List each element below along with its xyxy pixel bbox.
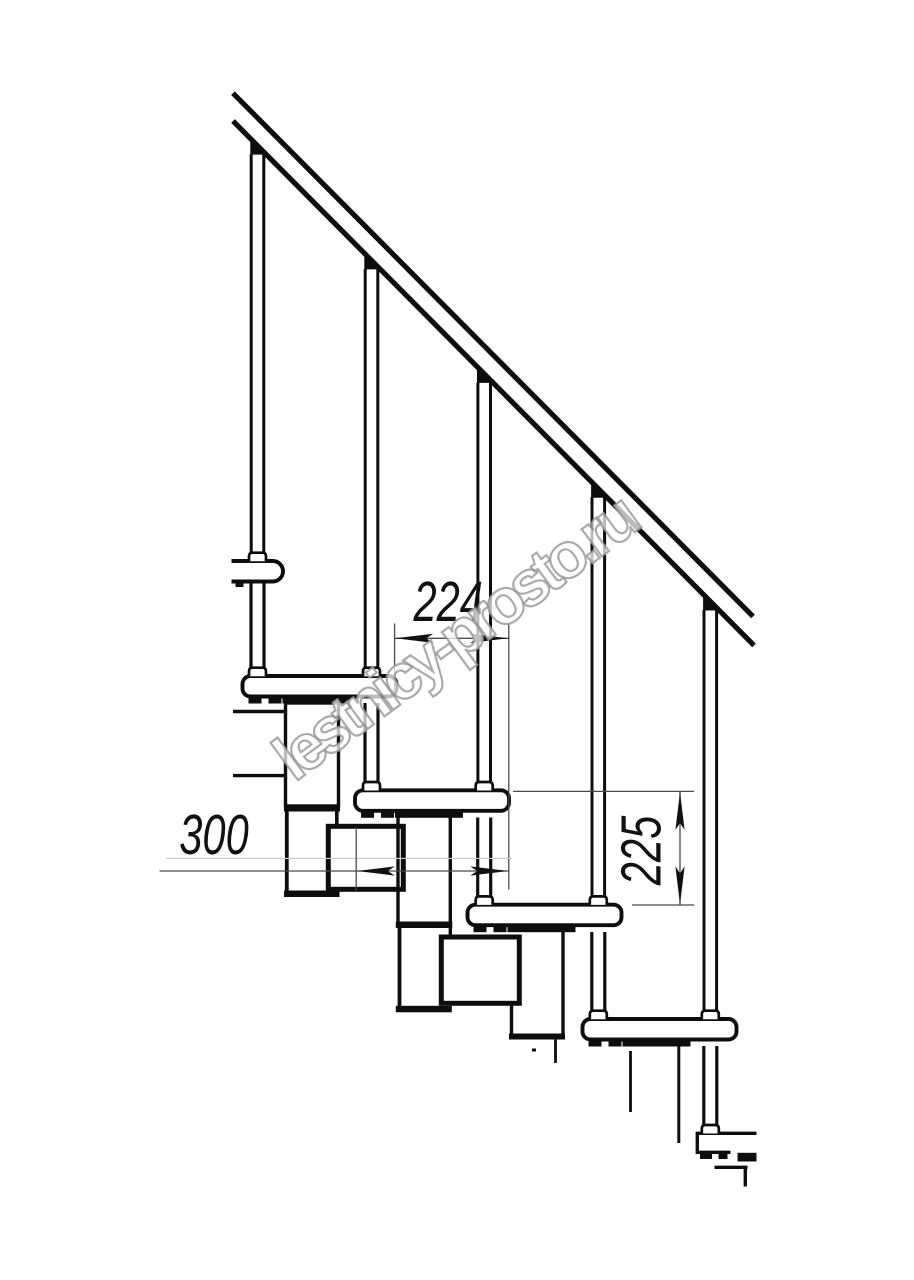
svg-text:300: 300 — [179, 803, 249, 867]
svg-text:225: 225 — [609, 816, 673, 886]
